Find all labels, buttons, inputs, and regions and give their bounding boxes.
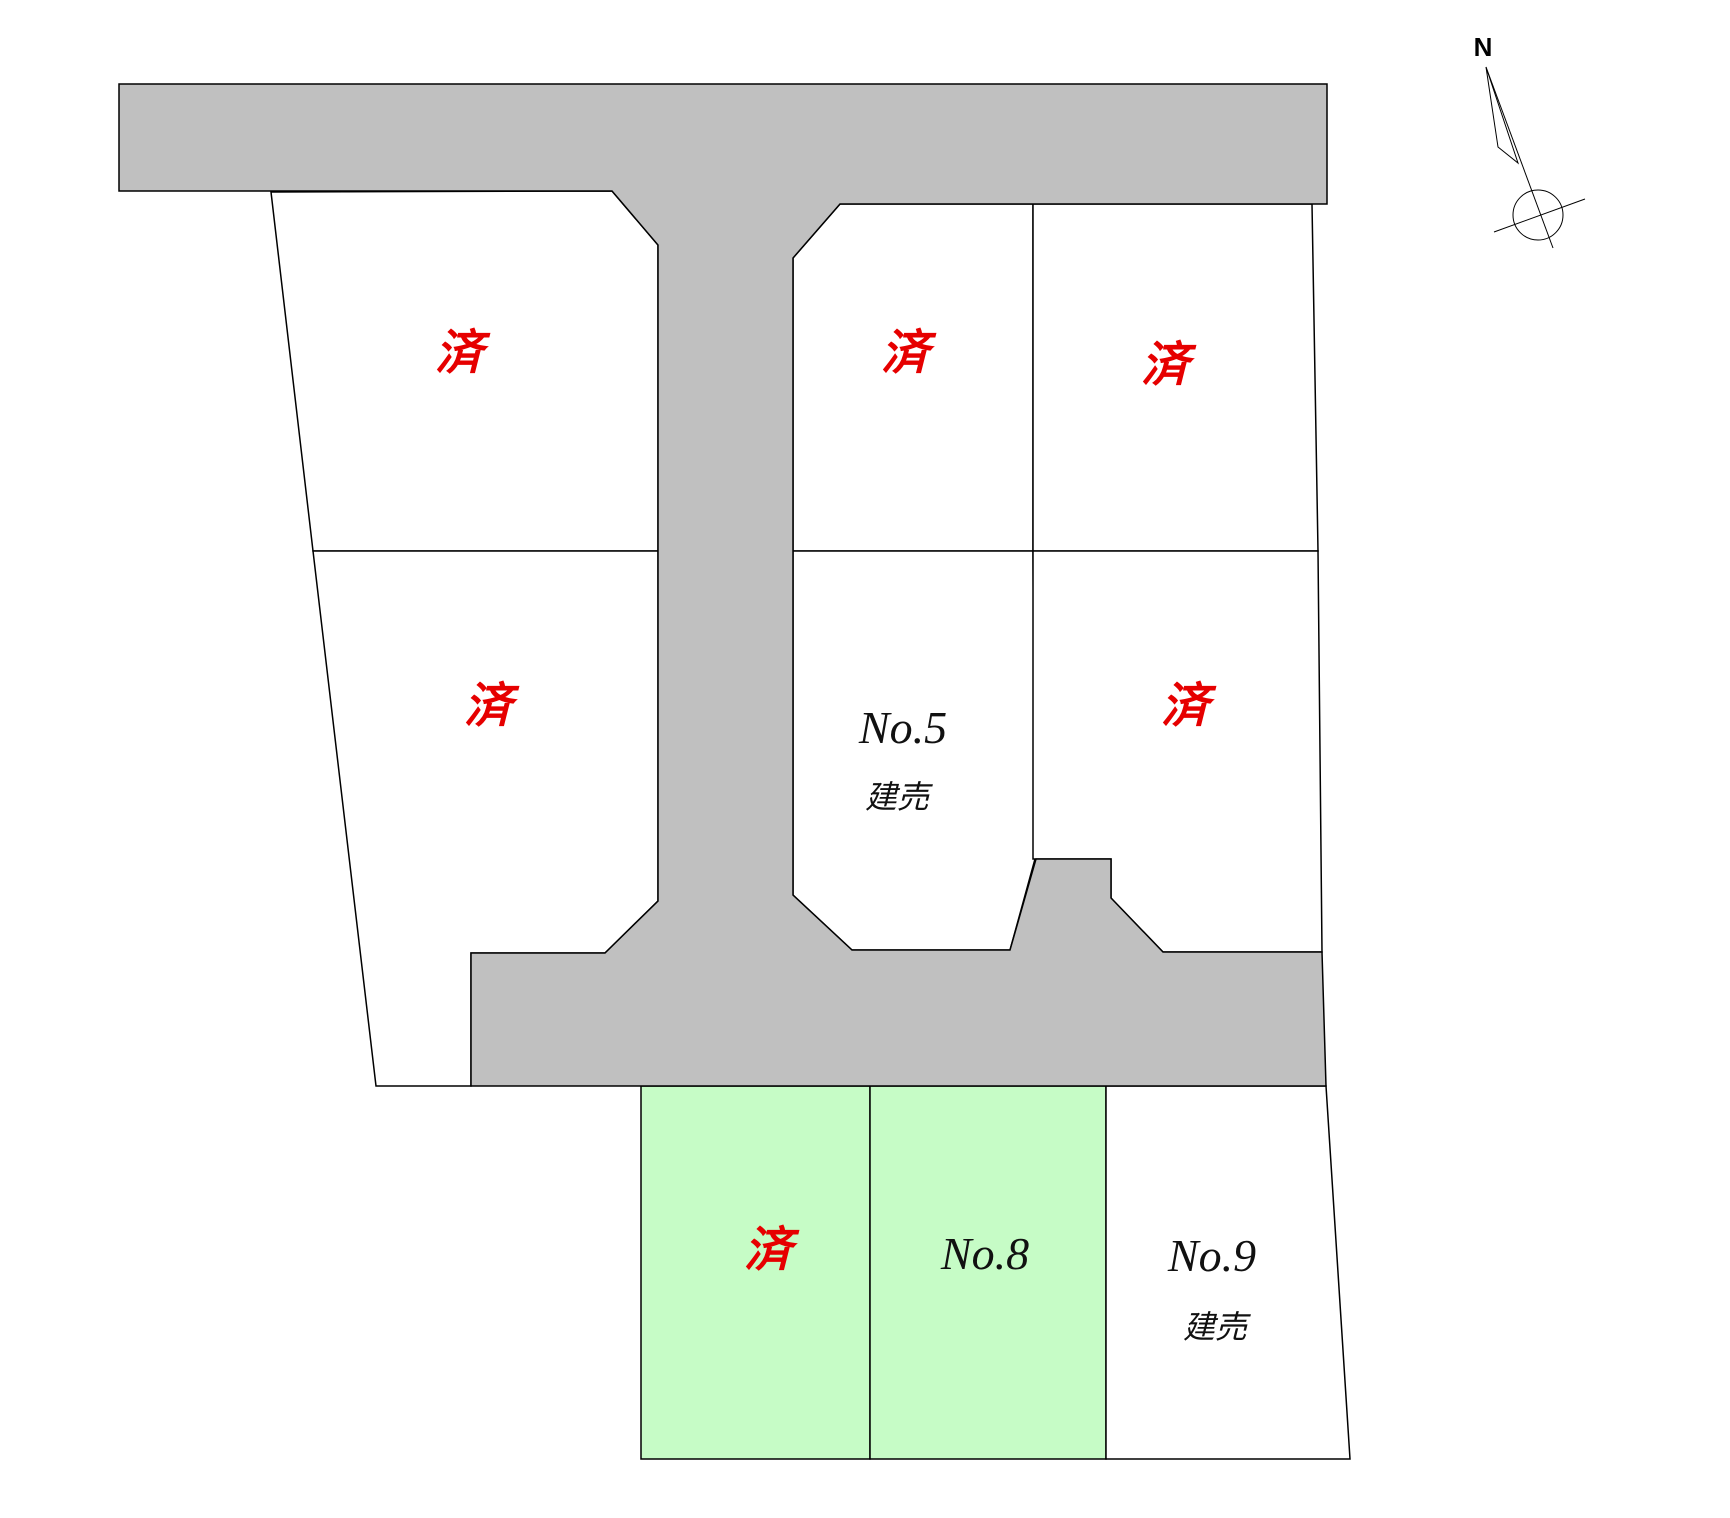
lot-sublabel-no5: 建売 [865, 779, 933, 815]
lot-map-svg: 済 済 済 済 No.5 建売 済 済 No.8 No.9 建売 N [0, 0, 1730, 1518]
lot-label-top-left: 済 [435, 327, 491, 380]
lot-label-no8: No.8 [940, 1228, 1029, 1279]
lot-label-mid-left: 済 [464, 680, 520, 733]
lot-label-no5: No.5 [858, 702, 947, 753]
lot-label-bottom-left: 済 [744, 1224, 800, 1277]
lot-subdivision-map: 済 済 済 済 No.5 建売 済 済 No.8 No.9 建売 N [0, 0, 1730, 1518]
lot-label-top-right: 済 [1141, 339, 1197, 392]
lot-label-mid-right: 済 [1161, 680, 1217, 733]
lot-sublabel-no9: 建売 [1183, 1309, 1251, 1345]
lot-label-no9: No.9 [1167, 1230, 1256, 1281]
north-label: N [1474, 32, 1493, 62]
lot-label-top-middle: 済 [881, 327, 937, 380]
